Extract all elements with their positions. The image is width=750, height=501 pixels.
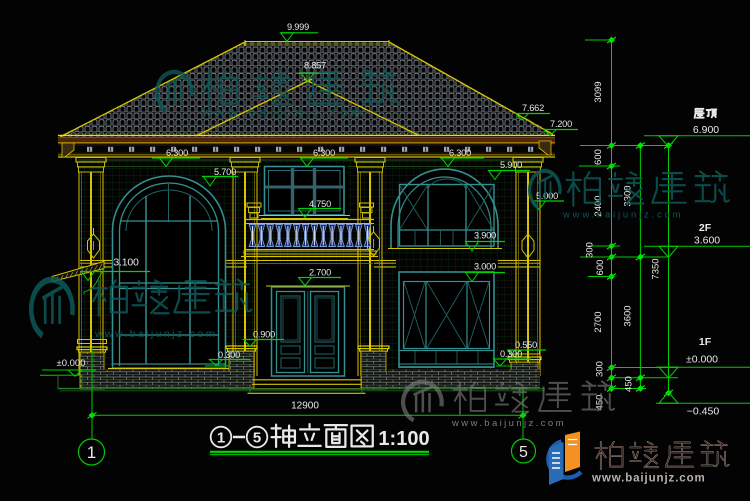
svg-text:7.200: 7.200 (550, 119, 572, 129)
svg-text:1: 1 (87, 443, 96, 462)
svg-text:0.900: 0.900 (253, 329, 275, 339)
svg-text:12900: 12900 (291, 401, 319, 412)
svg-text:3099: 3099 (593, 81, 604, 102)
svg-text:±0.000: ±0.000 (686, 354, 718, 366)
svg-text:600: 600 (593, 149, 604, 165)
svg-text:2F: 2F (699, 222, 712, 234)
svg-text:300: 300 (595, 361, 606, 377)
svg-text:300: 300 (585, 242, 596, 258)
svg-text:0.300: 0.300 (218, 350, 240, 360)
svg-text:1:100: 1:100 (378, 428, 429, 450)
svg-text:6.300: 6.300 (313, 148, 335, 158)
svg-text:5.700: 5.700 (214, 167, 236, 177)
svg-text:2.700: 2.700 (309, 267, 331, 277)
svg-text:7.662: 7.662 (522, 103, 544, 113)
svg-text:3.000: 3.000 (474, 261, 496, 271)
svg-text:450: 450 (624, 376, 635, 392)
svg-text:5: 5 (519, 444, 528, 461)
svg-text:8.857: 8.857 (304, 60, 326, 70)
svg-text:2700: 2700 (593, 311, 604, 332)
svg-text:9.999: 9.999 (287, 22, 309, 32)
svg-text:4.750: 4.750 (309, 199, 331, 209)
svg-text:www.baijunjz.com: www.baijunjz.com (451, 418, 566, 429)
svg-text:3.600: 3.600 (694, 235, 720, 247)
svg-text:−0.450: −0.450 (687, 406, 720, 418)
svg-text:5: 5 (253, 430, 261, 447)
svg-text:5.900: 5.900 (500, 160, 522, 170)
svg-text:3600: 3600 (623, 305, 634, 326)
svg-text:600: 600 (595, 260, 606, 276)
svg-text:6.300: 6.300 (166, 148, 188, 158)
svg-text:www.baijunjz.com: www.baijunjz.com (94, 328, 217, 340)
svg-text:6.900: 6.900 (693, 124, 719, 136)
svg-text:www.baijunjz.com: www.baijunjz.com (201, 105, 366, 120)
svg-text:www.baijunjz.com: www.baijunjz.com (562, 210, 683, 221)
svg-text:0.300: 0.300 (500, 349, 522, 359)
svg-text:1: 1 (217, 430, 225, 447)
svg-text:www.baijunjz.com: www.baijunjz.com (591, 473, 706, 485)
svg-text:3.900: 3.900 (474, 230, 496, 240)
svg-text:7350: 7350 (651, 258, 662, 279)
svg-text:3.100: 3.100 (113, 257, 139, 269)
svg-text:6.300: 6.300 (449, 148, 471, 158)
svg-text:1F: 1F (699, 336, 712, 348)
svg-text:±0.000: ±0.000 (57, 358, 86, 369)
